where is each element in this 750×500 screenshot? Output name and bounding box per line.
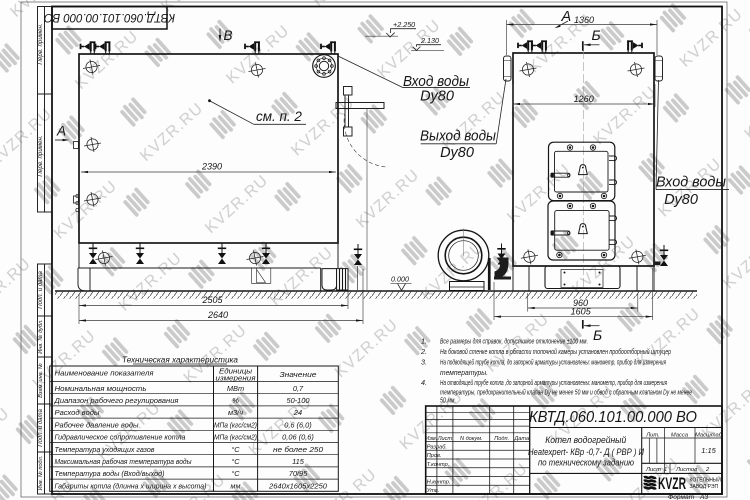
svg-text:Инв. № дубл.: Инв. № дубл. [38,319,44,353]
svg-text:Листов: Листов [675,467,697,473]
svg-text:А: А [56,124,66,139]
svg-text:Взам. инв. №: Взам. инв. № [38,363,44,398]
svg-text:KVZR: KVZR [658,474,686,493]
svg-text:70/95: 70/95 [289,469,308,478]
svg-text:Перв. примен.: Перв. примен. [37,135,44,176]
svg-text:Dy80: Dy80 [664,192,698,208]
svg-text:2.130: 2.130 [420,36,439,45]
svg-text:мм: мм [230,481,240,490]
svg-text:Выход воды: Выход воды [420,128,496,145]
svg-text:Подп. и дата: Подп. и дата [38,409,44,447]
svg-text:4.: 4. [421,378,427,387]
svg-text:Dy80: Dy80 [440,145,474,161]
svg-text:см. п. 2: см. п. 2 [256,109,302,124]
svg-text:Максимальная рабочая температу: Максимальная рабочая температура воды [55,457,192,466]
svg-text:0.000: 0.000 [391,275,409,284]
svg-text:2.: 2. [420,347,427,356]
svg-text:Dy80: Dy80 [420,89,454,105]
svg-text:Лит.: Лит. [645,432,660,438]
svg-text:°С: °С [231,445,240,454]
svg-text:Heatexpert- КВр -0,7- Д ( РВР: Heatexpert- КВр -0,7- Д ( РВР ) И [528,446,644,457]
svg-text:Температура воды (Вход/выход): Температура воды (Вход/выход) [55,469,166,478]
svg-text:50-100: 50-100 [286,396,310,405]
svg-text:1:15: 1:15 [701,446,716,455]
svg-text:Перв. примен.: Перв. примен. [37,23,44,64]
svg-text:А3: А3 [699,494,708,500]
svg-text:Техническая характеристика: Техническая характеристика [122,355,238,364]
svg-text:1605: 1605 [571,306,592,316]
svg-text:Номинальная мощность: Номинальная мощность [55,384,147,393]
svg-text:0,6 (6,0): 0,6 (6,0) [284,420,312,429]
svg-text:Н.контр.: Н.контр. [427,479,451,485]
svg-text:1260: 1260 [574,94,594,104]
svg-text:не более 250: не более 250 [273,445,324,454]
svg-text:КОТЕЛЬНЫЙ: КОТЕЛЬНЫЙ [690,476,722,484]
svg-text:Лист: Лист [645,467,661,473]
svg-text:115: 115 [292,457,305,466]
svg-text:температуры, предохранительный: температуры, предохранительный клапан Dу… [440,387,692,396]
svg-text:Лист: Лист [437,436,453,442]
svg-text:измерения: измерения [216,373,256,382]
svg-text:Изм.: Изм. [425,436,437,442]
svg-text:N докум.: N докум. [460,436,483,442]
svg-text:Температура уходящих газов: Температура уходящих газов [55,445,155,454]
svg-text:50 мм.: 50 мм. [440,396,456,405]
svg-text:Масштаб: Масштаб [695,432,723,438]
svg-text:2390: 2390 [201,162,222,172]
svg-text:МПа (кгс/см2): МПа (кгс/см2) [214,420,257,429]
svg-text:°С: °С [231,457,240,466]
svg-text:2640х1605х2250: 2640х1605х2250 [268,481,328,490]
svg-text:Диапазон рабочего регулировани: Диапазон рабочего регулирования [53,396,178,405]
svg-text:На подводящей трубе котла, д: На подводящей трубе котла, до запорной а… [440,358,666,367]
svg-text:Подп.: Подп. [494,436,509,442]
svg-text:Наименование показателя: Наименование показателя [55,369,154,378]
svg-text:Б: Б [593,327,602,343]
svg-text:Пров.: Пров. [427,453,442,459]
svg-text:2640: 2640 [207,310,228,320]
svg-text:температуры.: температуры. [440,368,488,377]
svg-text:Котел водогрейный: Котел водогрейный [545,434,627,445]
svg-text:+2.250: +2.250 [393,20,415,29]
svg-text:по техническому заданию: по техническому заданию [538,457,634,468]
svg-text:Утв.: Утв. [426,488,440,494]
svg-text:Б: Б [592,27,601,43]
svg-text:%: % [232,396,239,405]
svg-text:ЗАВОД РЭП: ЗАВОД РЭП [690,484,719,490]
svg-text:МПа (кгс/см2): МПа (кгс/см2) [214,433,257,442]
svg-text:МВт: МВт [227,384,244,393]
svg-text:На боковой стенке котла в обла: На боковой стенке котла в области топочн… [440,347,671,356]
svg-text:На отводящей трубе котла ,до з: На отводящей трубе котла ,до запорной ар… [440,378,667,387]
svg-text:КВТД.060.101.00.000 ВО: КВТД.060.101.00.000 ВО [529,409,697,426]
svg-text:1: 1 [664,467,667,473]
svg-text:В: В [224,28,233,43]
svg-text:Формат: Формат [668,494,695,500]
svg-text:м3/ч: м3/ч [228,408,243,417]
svg-text:3.: 3. [421,358,427,367]
svg-text:24: 24 [293,408,302,417]
svg-text:1.: 1. [421,337,427,346]
svg-text:Расход воды: Расход воды [55,408,101,417]
svg-text:Масса: Масса [671,432,689,438]
svg-text:Т.контр.: Т.контр. [427,462,450,468]
svg-text:0,06 (0,6): 0,06 (0,6) [282,433,314,442]
svg-text:Вход воды: Вход воды [656,174,726,191]
svg-text:1360: 1360 [574,15,594,25]
svg-text:Гидравлическое сопротивление к: Гидравлическое сопротивление котла [55,433,186,442]
svg-text:Значение: Значение [280,370,317,379]
svg-text:Подп. и дата: Подп. и дата [38,271,44,309]
svg-text:Дата: Дата [513,436,529,442]
svg-text:°С: °С [231,469,240,478]
svg-text:Все размеры для справок, допус: Все размеры для справок, допустимое откл… [440,337,588,346]
svg-text:0,7: 0,7 [293,384,304,393]
svg-text:Рабочее давление воды: Рабочее давление воды [55,420,140,429]
svg-text:КВТД.060.101.00.000 ВО: КВТД.060.101.00.000 ВО [44,11,175,23]
svg-text:Габариты котла (длинна х ширин: Габариты котла (длинна х ширина х высота… [55,481,208,490]
svg-text:Разраб.: Разраб. [427,445,447,451]
svg-text:Инв. № подл.: Инв. № подл. [38,456,44,491]
